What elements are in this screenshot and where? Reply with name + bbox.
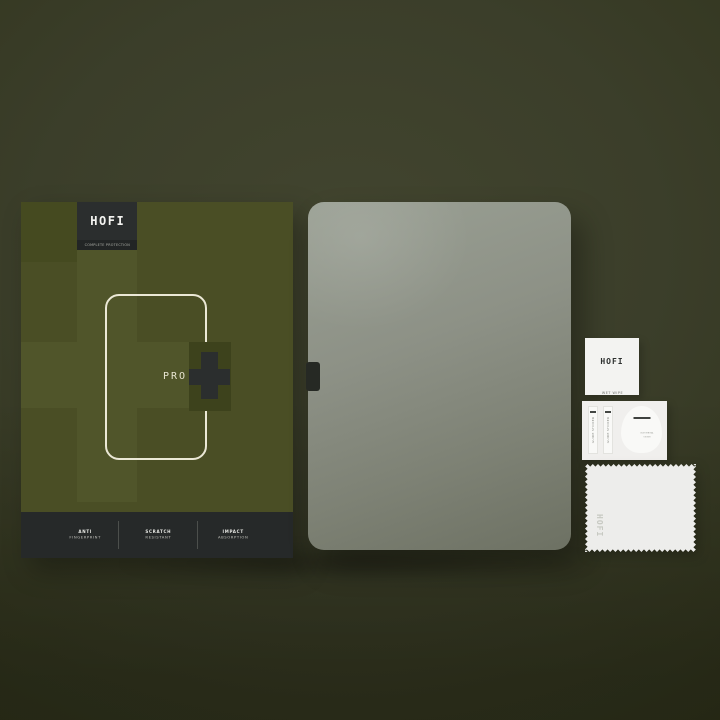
- guide-sticker-strip: GUIDE STICKER: [588, 406, 598, 454]
- plus-icon: [201, 352, 218, 399]
- microfiber-cloth: HOFI: [585, 464, 696, 552]
- hofi-logo: HOFI: [90, 214, 125, 228]
- wet-wipe-label: WET WIPE: [585, 380, 639, 399]
- sticker-dash: [590, 411, 596, 413]
- product-photo: PRO HOFI COMPLETE PROTECTION ANTI FINGER…: [0, 0, 720, 720]
- sticker-dash: [605, 411, 611, 413]
- feature-line: FINGERPRINT: [69, 535, 101, 540]
- hofi-logo: HOFI: [585, 357, 639, 366]
- feature-line: RESISTANT: [145, 535, 171, 540]
- brand-tagline-strip: COMPLETE PROTECTION: [77, 240, 137, 250]
- box-art-dark-corner: [21, 202, 77, 262]
- glass-protector: [308, 202, 571, 550]
- brand-badge: HOFI: [77, 202, 137, 240]
- guide-sticker-strip: GUIDE STICKER: [603, 406, 613, 454]
- guide-sticker-label: GUIDE STICKER: [606, 417, 610, 443]
- dust-removal-label: DUST REMOVAL STICKER: [621, 428, 662, 447]
- hofi-logo: HOFI: [595, 514, 604, 537]
- product-box: PRO HOFI COMPLETE PROTECTION ANTI FINGER…: [21, 202, 293, 558]
- sticker-dash: [633, 417, 650, 419]
- camera-cutout-tab: [306, 362, 320, 391]
- feature-line: ABSORPTION: [218, 535, 248, 540]
- feature-scratch-resistant: SCRATCH RESISTANT: [118, 512, 198, 558]
- brand-tagline: COMPLETE PROTECTION: [84, 243, 129, 247]
- wet-wipe-sachet: HOFI WET WIPE: [585, 338, 639, 395]
- feature-strip: ANTI FINGERPRINT SCRATCH RESISTANT IMPAC…: [21, 512, 293, 558]
- feature-impact-absorption: IMPACT ABSORPTION: [193, 512, 273, 558]
- guide-sticker-label: GUIDE STICKER: [591, 417, 595, 443]
- dust-removal-label-text: DUST REMOVAL STICKER: [634, 432, 660, 440]
- microfiber-cloth-wrap: HOFI: [585, 464, 696, 552]
- dust-removal-sticker: DUST REMOVAL STICKER: [621, 406, 662, 453]
- series-label: PRO: [149, 371, 187, 382]
- sticker-card: GUIDE STICKER GUIDE STICKER DUST REMOVAL…: [582, 401, 667, 460]
- wet-wipe-label-text: WET WIPE: [601, 391, 622, 395]
- feature-anti-fingerprint: ANTI FINGERPRINT: [45, 512, 125, 558]
